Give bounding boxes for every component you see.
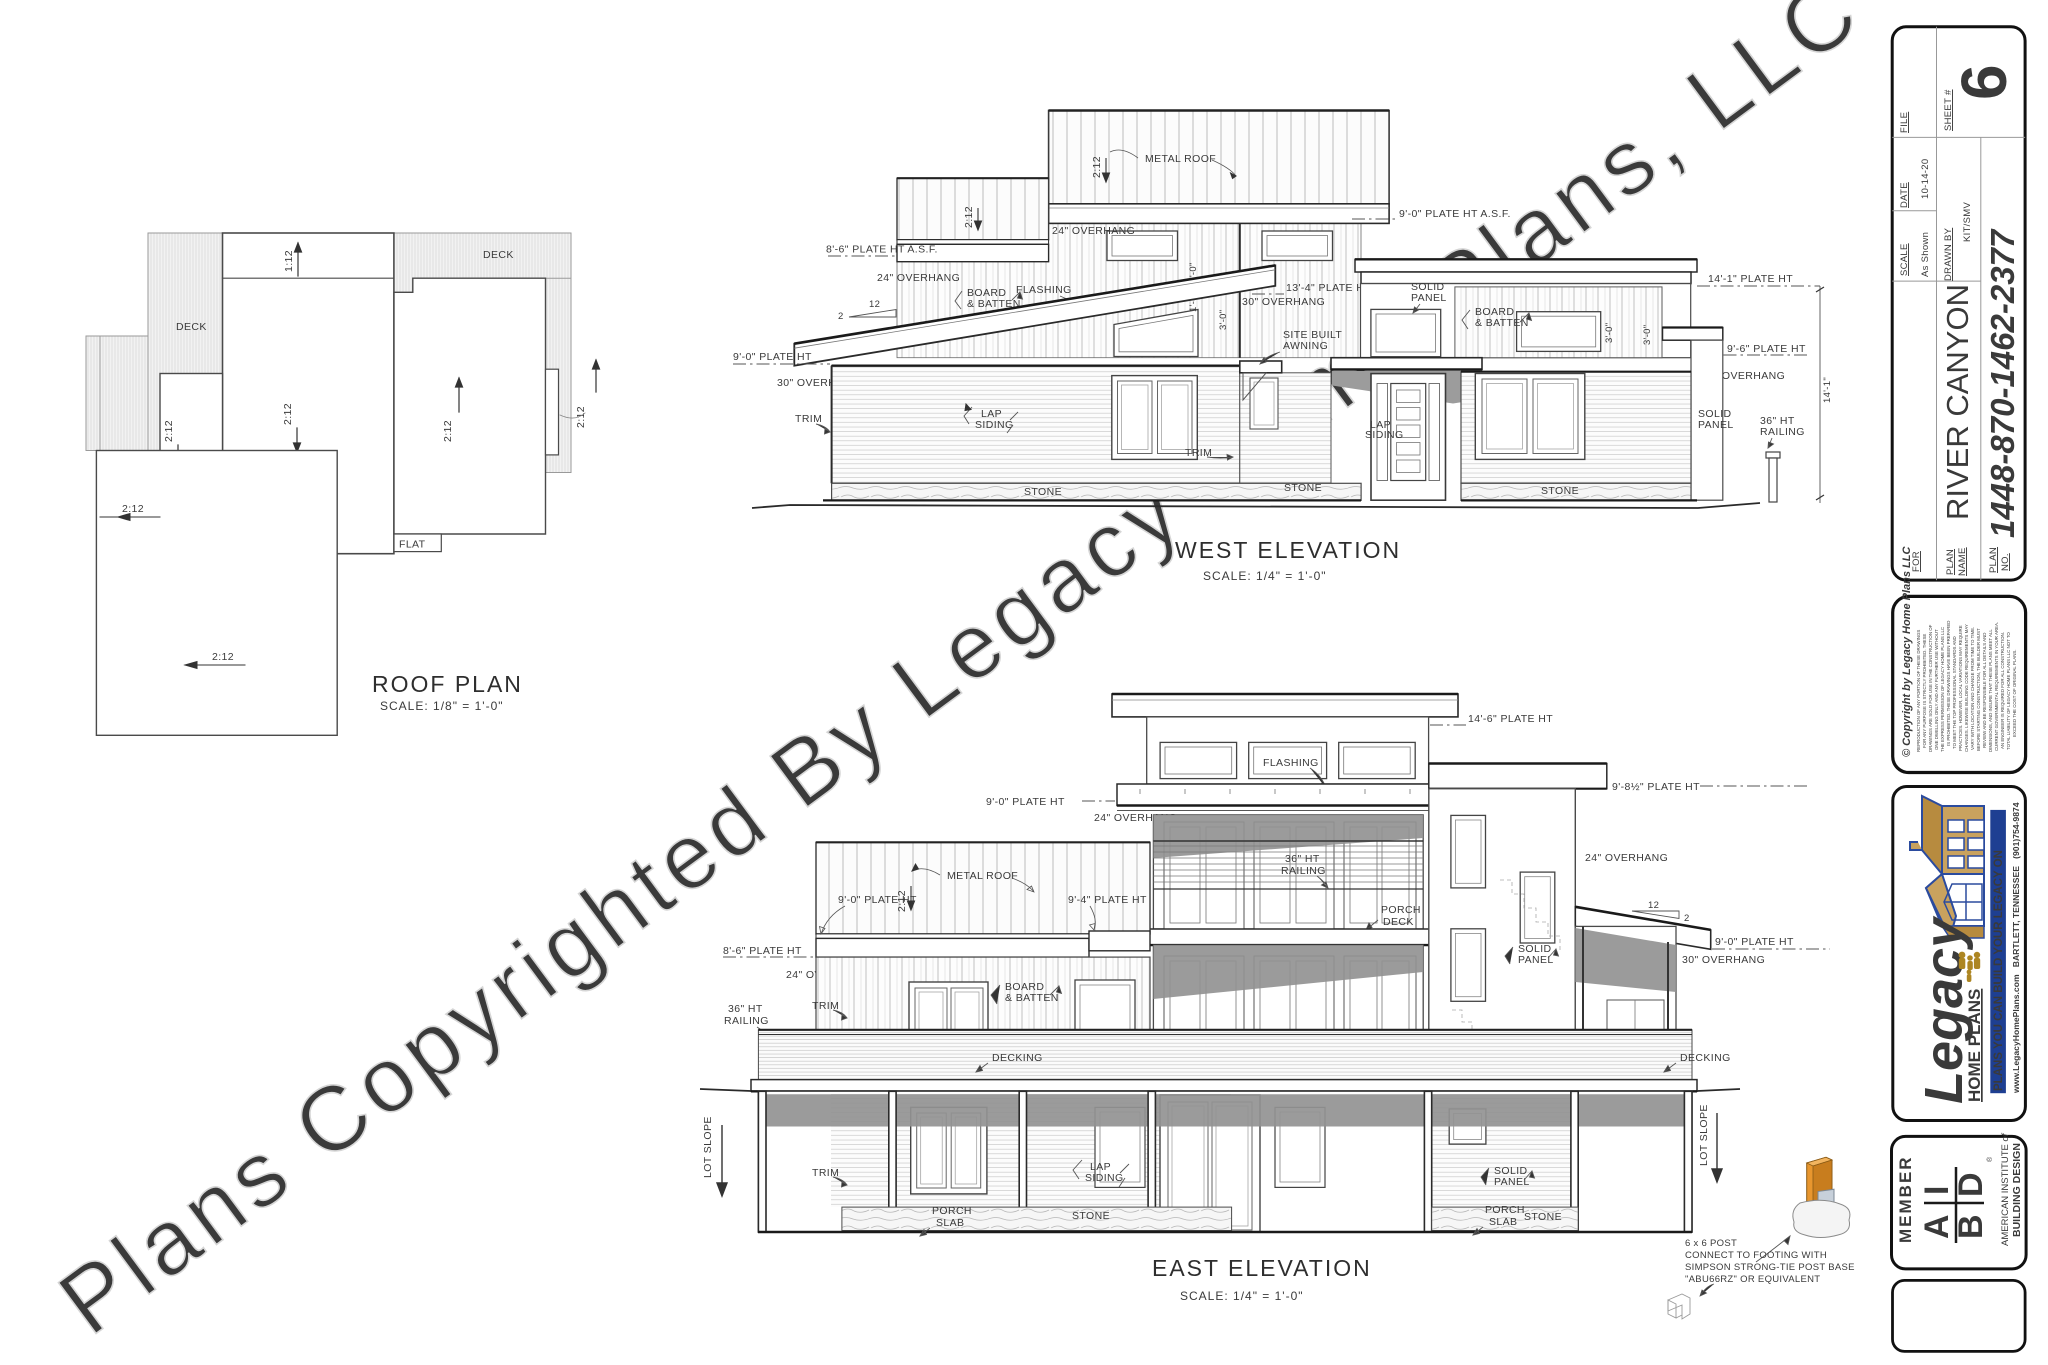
svg-text:14'-6" PLATE HT: 14'-6" PLATE HT — [1468, 713, 1553, 725]
svg-text:PANEL: PANEL — [1518, 954, 1554, 966]
svg-text:VARY WITH LOCATION AND CHANGE: VARY WITH LOCATION AND CHANGE FROM TIME … — [1970, 627, 1975, 750]
svg-text:PLAN: PLAN — [1945, 549, 1956, 575]
svg-text:2:12: 2:12 — [442, 420, 454, 442]
svg-text:SIDING: SIDING — [1365, 429, 1404, 441]
svg-text:KIT/SMV: KIT/SMV — [1962, 202, 1973, 242]
svg-text:PRACTICES. HOWEVER, LOCAL VARI: PRACTICES. HOWEVER, LOCAL VARIATIONS MAY… — [1958, 625, 1963, 751]
svg-text:14'-1": 14'-1" — [1822, 377, 1833, 403]
svg-text:RIVER CANYON: RIVER CANYON — [1940, 284, 1975, 520]
svg-text:1448-870-1462-2377: 1448-870-1462-2377 — [1984, 228, 2021, 538]
svg-text:30" OVERHANG: 30" OVERHANG — [1242, 296, 1325, 308]
svg-text:STONE: STONE — [1284, 482, 1322, 494]
svg-text:www.LegacyHomePlans.com BART: www.LegacyHomePlans.com BARTLETT, TENNES… — [2011, 802, 2021, 1094]
svg-text:STONE: STONE — [1024, 486, 1062, 498]
svg-text:30" OVERHANG: 30" OVERHANG — [1682, 954, 1765, 966]
svg-text:36" HT: 36" HT — [728, 1003, 763, 1015]
svg-text:9'-4" PLATE HT: 9'-4" PLATE HT — [1068, 894, 1147, 906]
svg-text:FILE: FILE — [1899, 112, 1910, 133]
svg-text:SCALE: 1/4" = 1'-0": SCALE: 1/4" = 1'-0" — [1180, 1289, 1304, 1303]
svg-text:6 x 6 POST: 6 x 6 POST — [1685, 1238, 1737, 1249]
svg-text:STONE: STONE — [1524, 1211, 1562, 1223]
svg-text:NO.: NO. — [2000, 553, 2011, 571]
svg-text:PLAN: PLAN — [1988, 547, 1999, 573]
svg-text:DECKING: DECKING — [1680, 1052, 1731, 1064]
svg-text:SCALE: 1/8" = 1'-0": SCALE: 1/8" = 1'-0" — [380, 699, 504, 713]
svg-text:8'-6" PLATE HT: 8'-6" PLATE HT — [723, 945, 802, 957]
svg-text:D: D — [1952, 1172, 1990, 1197]
svg-text:2:12: 2:12 — [122, 503, 144, 515]
svg-text:A: A — [1918, 1214, 1956, 1239]
svg-text:DECK: DECK — [483, 249, 514, 261]
svg-text:6: 6 — [1948, 64, 2020, 100]
svg-text:24" OVERHANG: 24" OVERHANG — [1585, 852, 1668, 864]
svg-text:DECKING: DECKING — [992, 1052, 1043, 1064]
svg-text:& BATTEN: & BATTEN — [1475, 317, 1529, 329]
svg-text:SIDING: SIDING — [1085, 1172, 1124, 1184]
svg-text:EXCEED THE COST OF ORIGINAL PL: EXCEED THE COST OF ORIGINAL PLANS. — [2012, 649, 2017, 737]
svg-text:9'-8½" PLATE HT: 9'-8½" PLATE HT — [1612, 781, 1700, 793]
svg-text:PANEL: PANEL — [1411, 292, 1447, 304]
svg-text:PLANS YOU CAN BUILD YOUR LEGAC: PLANS YOU CAN BUILD YOUR LEGACY ON — [1993, 850, 2005, 1091]
svg-text:3'-0": 3'-0" — [1604, 323, 1615, 343]
svg-text:FLAT: FLAT — [399, 539, 426, 551]
svg-text:RAILING: RAILING — [724, 1015, 769, 1027]
svg-text:DECK: DECK — [176, 321, 207, 333]
svg-text:2:12: 2:12 — [575, 406, 587, 428]
svg-text:AN ENGINEER IS REQUIRED FOR AL: AN ENGINEER IS REQUIRED FOR ALL CONSTRUC… — [2000, 632, 2005, 749]
svg-text:1:12: 1:12 — [283, 250, 295, 272]
svg-text:SLAB: SLAB — [936, 1217, 964, 1229]
svg-text:TOTAL LIABILITY OF LEGACY HOME: TOTAL LIABILITY OF LEGACY HOME PLANS LLC… — [2006, 632, 2011, 750]
svg-text:STONE: STONE — [1072, 1210, 1110, 1222]
svg-text:STONE: STONE — [1541, 485, 1579, 497]
svg-text:9'-0" PLATE HT: 9'-0" PLATE HT — [1715, 936, 1794, 948]
svg-text:9'-0" PLATE HT: 9'-0" PLATE HT — [838, 894, 917, 906]
svg-text:RAILING: RAILING — [1760, 426, 1805, 438]
svg-text:HOME PLANS: HOME PLANS — [1965, 989, 1984, 1102]
svg-text:FLASHING: FLASHING — [1016, 284, 1072, 296]
svg-text:CURRENT GOVERNMENTAL REQUIREME: CURRENT GOVERNMENTAL REQUIREMENTS IN YOU… — [1994, 622, 1999, 751]
svg-text:9'-0" PLATE HT A.S.F.: 9'-0" PLATE HT A.S.F. — [1399, 208, 1511, 220]
svg-text:LOT SLOPE: LOT SLOPE — [702, 1116, 714, 1178]
svg-text:SLAB: SLAB — [1489, 1216, 1517, 1228]
svg-text:3'-0": 3'-0" — [1642, 325, 1653, 345]
svg-text:2: 2 — [838, 311, 844, 322]
svg-text:DRAWINGS ARE SOLD FOR USE IN T: DRAWINGS ARE SOLD FOR USE IN THE CONSTRU… — [1928, 624, 1933, 752]
svg-text:2:12: 2:12 — [163, 420, 175, 442]
svg-text:BEFORE STARTING CONSTRUCTION,: BEFORE STARTING CONSTRUCTION, THE BUILDE… — [1976, 628, 1981, 751]
svg-text:DATE: DATE — [1899, 182, 1910, 208]
svg-text:DRAWN BY: DRAWN BY — [1943, 227, 1954, 281]
svg-text:CHANGES. LIKEWISE BUILDING COD: CHANGES. LIKEWISE BUILDING CODE REQUIREM… — [1964, 624, 1969, 752]
svg-text:10-14-20: 10-14-20 — [1920, 159, 1931, 199]
svg-text:PANEL: PANEL — [1698, 419, 1734, 431]
svg-text:PORCH: PORCH — [1381, 904, 1421, 916]
svg-text:THE EXPRESS PERMISSION OF LEGA: THE EXPRESS PERMISSION OF LEGACY HOME PL… — [1940, 627, 1945, 752]
svg-text:NAME: NAME — [1957, 547, 1968, 576]
svg-text:3'-0": 3'-0" — [1218, 310, 1229, 330]
svg-text:IS PROHIBITED. THESE DRAWINGS: IS PROHIBITED. THESE DRAWINGS HAVE BEEN … — [1946, 621, 1951, 746]
svg-text:®: ® — [1986, 1156, 1994, 1162]
svg-text:9'-6" PLATE HT: 9'-6" PLATE HT — [1727, 343, 1806, 355]
svg-text:B: B — [1952, 1214, 1990, 1239]
svg-text:24" OVERHANG: 24" OVERHANG — [877, 272, 960, 284]
svg-text:EAST ELEVATION: EAST ELEVATION — [1152, 1255, 1372, 1281]
svg-text:METAL ROOF: METAL ROOF — [947, 870, 1018, 882]
svg-text:LOT SLOPE: LOT SLOPE — [1698, 1104, 1710, 1166]
svg-text:SCALE: 1/4" = 1'-0": SCALE: 1/4" = 1'-0" — [1203, 569, 1327, 583]
svg-text:"ABU66RZ" OR EQUIVALENT: "ABU66RZ" OR EQUIVALENT — [1685, 1274, 1820, 1285]
svg-text:2: 2 — [1684, 913, 1690, 924]
svg-text:SIMPSON STRONG-TIE POST BASE: SIMPSON STRONG-TIE POST BASE — [1685, 1262, 1855, 1273]
svg-text:2:12: 2:12 — [282, 403, 294, 425]
svg-text:© Copyright by Legacy Home Pla: © Copyright by Legacy Home Plans LLC — [1901, 546, 1913, 757]
svg-text:PORCH: PORCH — [1485, 1204, 1525, 1216]
svg-text:ROOF PLAN: ROOF PLAN — [372, 671, 523, 697]
svg-text:CONNECT TO FOOTING WITH: CONNECT TO FOOTING WITH — [1685, 1250, 1827, 1261]
svg-text:2:12: 2:12 — [1091, 156, 1103, 178]
svg-text:13'-4" PLATE HT: 13'-4" PLATE HT — [1286, 282, 1371, 294]
svg-text:As Shown: As Shown — [1920, 232, 1931, 277]
svg-text:TO MEET THE TOP PROFESSIONAL S: TO MEET THE TOP PROFESSIONAL STANDARDS A… — [1952, 636, 1957, 749]
svg-text:METAL ROOF: METAL ROOF — [1145, 153, 1216, 165]
svg-text:FLASHING: FLASHING — [1263, 757, 1319, 769]
svg-text:BUILDING DESIGN: BUILDING DESIGN — [2011, 1143, 2023, 1237]
svg-text:MEMBER: MEMBER — [1896, 1155, 1915, 1243]
svg-text:RAILING: RAILING — [1281, 865, 1326, 877]
svg-text:REPRODUCTION OF ANY PORTION OF: REPRODUCTION OF ANY PORTION OF THESE DRA… — [1916, 630, 1921, 752]
svg-text:REVIEW AND BE RESPONSIBLE FOR: REVIEW AND BE RESPONSIBLE FOR ALL DETAIL… — [1982, 633, 1987, 748]
svg-text:9'-0" PLATE HT: 9'-0" PLATE HT — [986, 796, 1065, 808]
svg-text:PORCH: PORCH — [932, 1205, 972, 1217]
svg-text:14'-1" PLATE HT: 14'-1" PLATE HT — [1708, 273, 1793, 285]
svg-text:ONE DWELLING ONLY AND ANY FURT: ONE DWELLING ONLY AND ANY FURTHER USE WI… — [1934, 629, 1939, 750]
svg-text:WEST ELEVATION: WEST ELEVATION — [1175, 537, 1401, 563]
svg-text:8'-6" PLATE HT A.S.F.: 8'-6" PLATE HT A.S.F. — [826, 244, 938, 256]
svg-text:AWNING: AWNING — [1283, 340, 1328, 352]
svg-text:12: 12 — [869, 299, 880, 310]
svg-text:12: 12 — [1648, 900, 1659, 911]
svg-text:2:12: 2:12 — [963, 206, 975, 228]
svg-text:I: I — [1918, 1186, 1956, 1195]
svg-text:DECK: DECK — [1383, 916, 1414, 928]
svg-text:2:12: 2:12 — [212, 651, 234, 663]
svg-text:PANEL: PANEL — [1494, 1176, 1530, 1188]
svg-text:36" HT: 36" HT — [1285, 853, 1320, 865]
svg-text:24" OVERHANG: 24" OVERHANG — [1052, 225, 1135, 237]
svg-text:SIDING: SIDING — [975, 419, 1014, 431]
svg-text:AMERICAN INSTITUTE of: AMERICAN INSTITUTE of — [2000, 1132, 2011, 1246]
svg-text:SCALE: SCALE — [1899, 243, 1910, 276]
svg-text:FOR ANY PURPOSE IS STRICTLY PR: FOR ANY PURPOSE IS STRICTLY PROHIBITED. … — [1922, 634, 1927, 748]
svg-text:DIMENSIONS, AND INSURE THAT TH: DIMENSIONS, AND INSURE THAT THESE PLANS … — [1988, 629, 1993, 752]
svg-text:9'-0" PLATE HT: 9'-0" PLATE HT — [733, 351, 812, 363]
svg-text:TRIM: TRIM — [795, 413, 822, 425]
